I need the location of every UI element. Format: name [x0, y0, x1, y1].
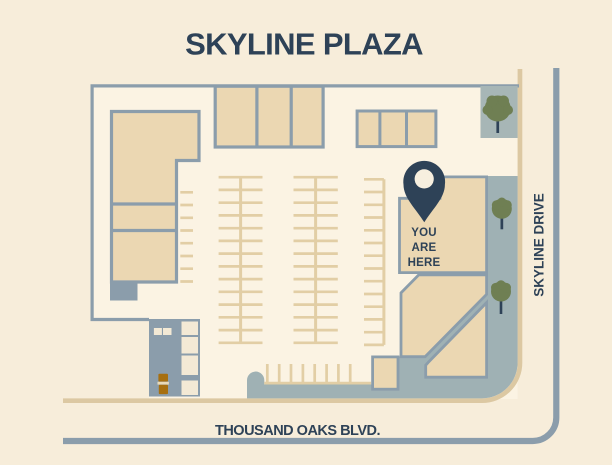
- svg-text:SKYLINE PLAZA: SKYLINE PLAZA: [185, 27, 423, 62]
- svg-text:SKYLINE DRIVE: SKYLINE DRIVE: [531, 193, 546, 297]
- svg-text:ARE: ARE: [412, 242, 437, 254]
- svg-text:HERE: HERE: [408, 257, 441, 269]
- svg-text:YOU: YOU: [411, 227, 437, 239]
- svg-text:THOUSAND OAKS BLVD.: THOUSAND OAKS BLVD.: [215, 423, 381, 439]
